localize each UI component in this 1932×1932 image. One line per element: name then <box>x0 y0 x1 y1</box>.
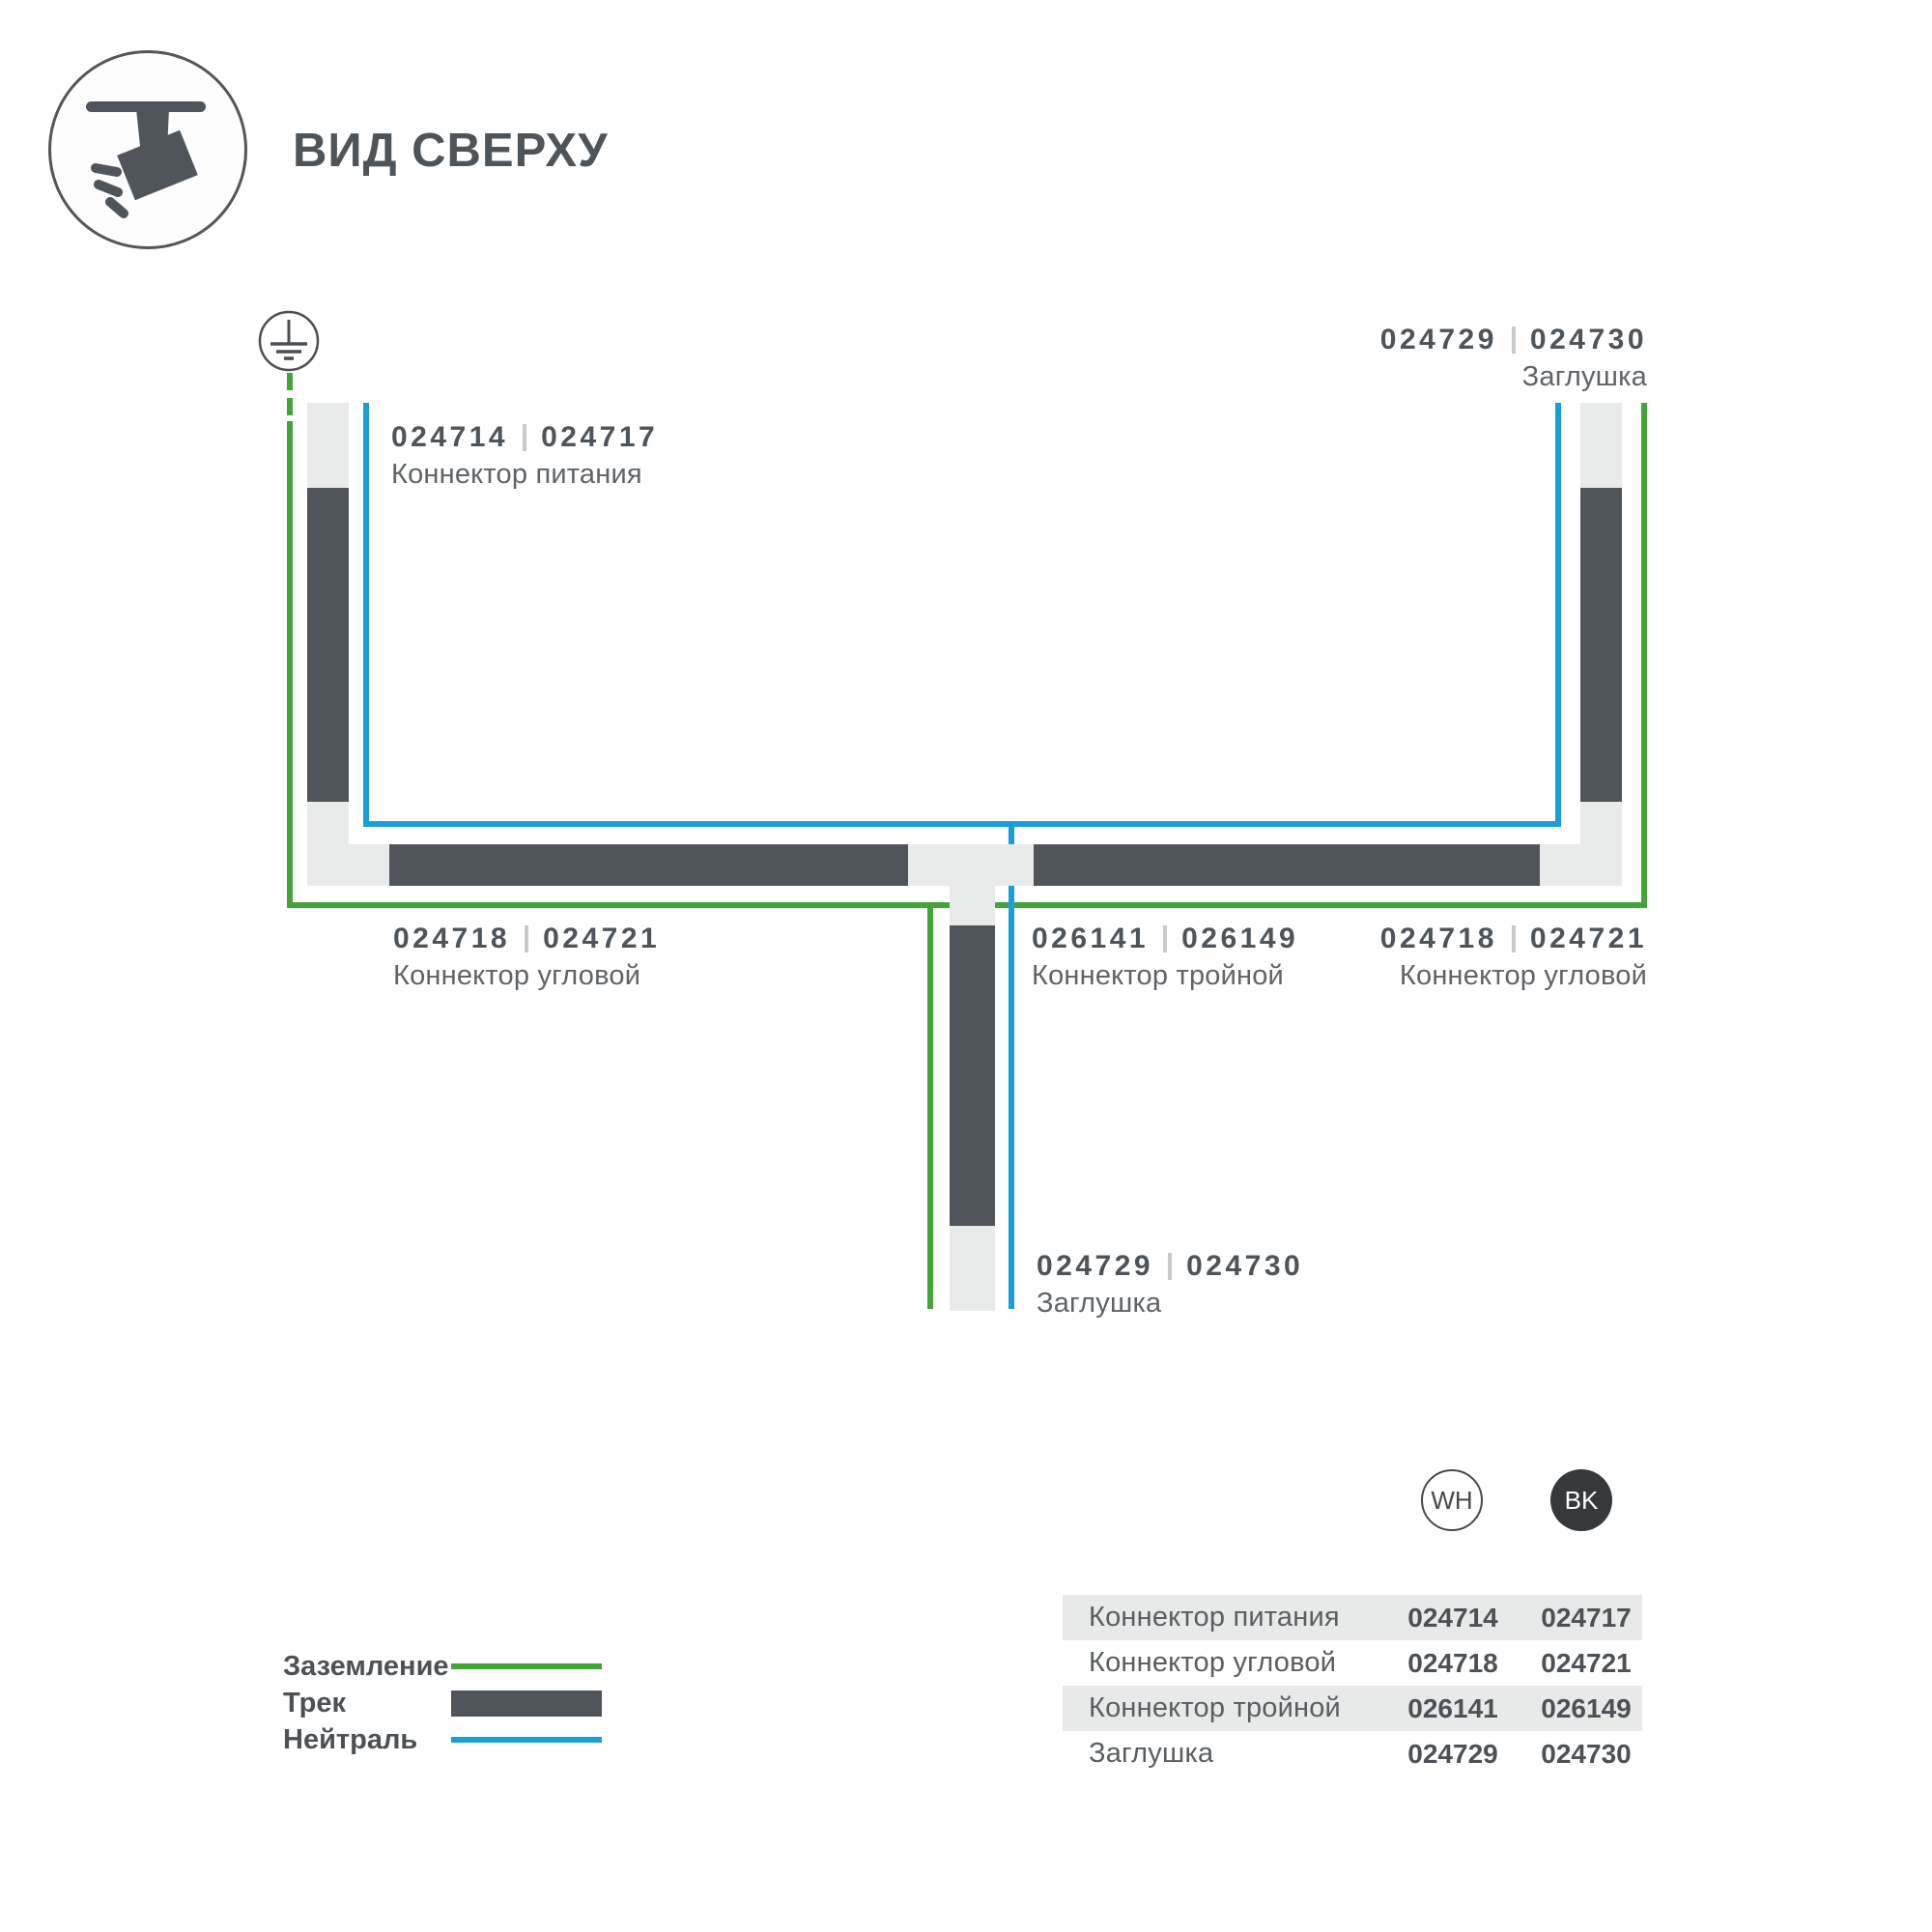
legend-row-neutral: Нейтраль <box>283 1721 602 1758</box>
track-segment-bottom-right <box>1034 844 1540 886</box>
table-row: Заглушка 024729 024730 <box>1063 1731 1642 1776</box>
table-part-name: Коннектор тройной <box>1063 1692 1397 1724</box>
track-spotlight-icon <box>48 50 247 249</box>
label-triple-connector: 026141 026149 Коннектор тройной <box>1032 923 1298 991</box>
code-separator <box>1512 925 1516 952</box>
corner-connector-left-h <box>307 844 389 886</box>
legend-label: Нейтраль <box>283 1724 451 1756</box>
code-separator <box>523 424 526 451</box>
table-row: Коннектор тройной 026141 026149 <box>1063 1686 1642 1731</box>
table-part-name: Заглушка <box>1063 1738 1397 1770</box>
track-bar-swatch <box>451 1690 602 1717</box>
code-separator <box>1168 1253 1172 1280</box>
endcap-bottom <box>950 1226 995 1311</box>
ground-line-swatch <box>451 1663 602 1669</box>
code-separator <box>525 925 528 952</box>
ground-wire-left <box>287 421 293 908</box>
track-segment-stem <box>950 925 995 1226</box>
table-code-bk: 024730 <box>1530 1739 1642 1770</box>
page: ВИД СВЕРХУ 024714 024717 Коннектор питан <box>0 0 1932 1932</box>
part-code: 026141 <box>1032 923 1149 954</box>
triple-connector-h <box>908 844 1034 886</box>
label-endcap-top-right: 024729 024730 Заглушка <box>1380 325 1647 392</box>
page-title: ВИД СВЕРХУ <box>293 124 609 178</box>
triple-connector-stem <box>950 886 995 925</box>
part-code: 024717 <box>541 422 658 453</box>
part-code: 024730 <box>1186 1251 1303 1282</box>
part-code: 024721 <box>1530 923 1647 954</box>
part-name: Заглушка <box>1380 361 1647 392</box>
part-code: 024714 <box>391 422 508 453</box>
track-segment-bottom-left <box>389 844 908 886</box>
table-code-wh: 024729 <box>1397 1739 1509 1770</box>
ground-wire-dashed <box>287 373 293 423</box>
variant-chip-black: BK <box>1550 1469 1612 1531</box>
endcap-top-right <box>1580 403 1622 488</box>
legend-row-ground: Заземление <box>283 1648 602 1685</box>
ground-wire-stem <box>927 908 933 1309</box>
table-row: Коннектор питания 024714 024717 <box>1063 1595 1642 1640</box>
part-name: Заглушка <box>1037 1288 1303 1319</box>
code-separator <box>1512 327 1516 354</box>
table-code-wh: 024718 <box>1397 1648 1509 1679</box>
power-connector-left <box>307 403 349 488</box>
table-code-wh: 024714 <box>1397 1603 1509 1634</box>
part-name: Коннектор угловой <box>1380 960 1647 991</box>
neutral-wire-right <box>1555 403 1561 827</box>
ground-wire-right <box>1641 403 1647 908</box>
part-name: Коннектор тройной <box>1032 960 1298 991</box>
parts-table: Коннектор питания 024714 024717 Коннекто… <box>1063 1595 1642 1776</box>
part-code: 024721 <box>543 923 660 954</box>
part-code: 024718 <box>1380 923 1497 954</box>
legend-label: Заземление <box>283 1651 451 1683</box>
label-corner-connector-right: 024718 024721 Коннектор угловой <box>1380 923 1647 991</box>
table-code-bk: 026149 <box>1530 1693 1642 1724</box>
table-part-name: Коннектор угловой <box>1063 1647 1397 1679</box>
part-code: 026149 <box>1181 923 1298 954</box>
neutral-wire-bottom <box>363 821 1561 827</box>
neutral-line-swatch <box>451 1737 602 1743</box>
part-code: 024718 <box>393 923 510 954</box>
neutral-wire-stem <box>1009 827 1014 1309</box>
table-part-name: Коннектор питания <box>1063 1602 1397 1634</box>
part-code: 024729 <box>1037 1251 1153 1282</box>
table-row: Коннектор угловой 024718 024721 <box>1063 1640 1642 1686</box>
part-code: 024730 <box>1530 325 1647 355</box>
table-code-wh: 026141 <box>1397 1693 1509 1724</box>
track-segment-left <box>307 488 349 802</box>
ground-symbol-icon <box>257 309 323 375</box>
neutral-wire-left <box>363 403 369 827</box>
track-segment-right <box>1580 488 1622 802</box>
corner-connector-right-h <box>1540 844 1622 886</box>
legend-row-track: Трек <box>283 1685 602 1721</box>
part-name: Коннектор питания <box>391 459 658 490</box>
legend: Заземление Трек Нейтраль <box>283 1648 602 1758</box>
label-power-connector: 024714 024717 Коннектор питания <box>391 422 658 490</box>
spotlight-glyph <box>51 53 244 246</box>
part-name: Коннектор угловой <box>393 960 660 991</box>
label-endcap-bottom: 024729 024730 Заглушка <box>1037 1251 1303 1319</box>
part-code: 024729 <box>1380 325 1497 355</box>
table-code-bk: 024717 <box>1530 1603 1642 1634</box>
variant-chip-white: WH <box>1421 1469 1483 1531</box>
label-corner-connector-left: 024718 024721 Коннектор угловой <box>393 923 660 991</box>
table-code-bk: 024721 <box>1530 1648 1642 1679</box>
code-separator <box>1163 925 1167 952</box>
legend-label: Трек <box>283 1688 451 1719</box>
